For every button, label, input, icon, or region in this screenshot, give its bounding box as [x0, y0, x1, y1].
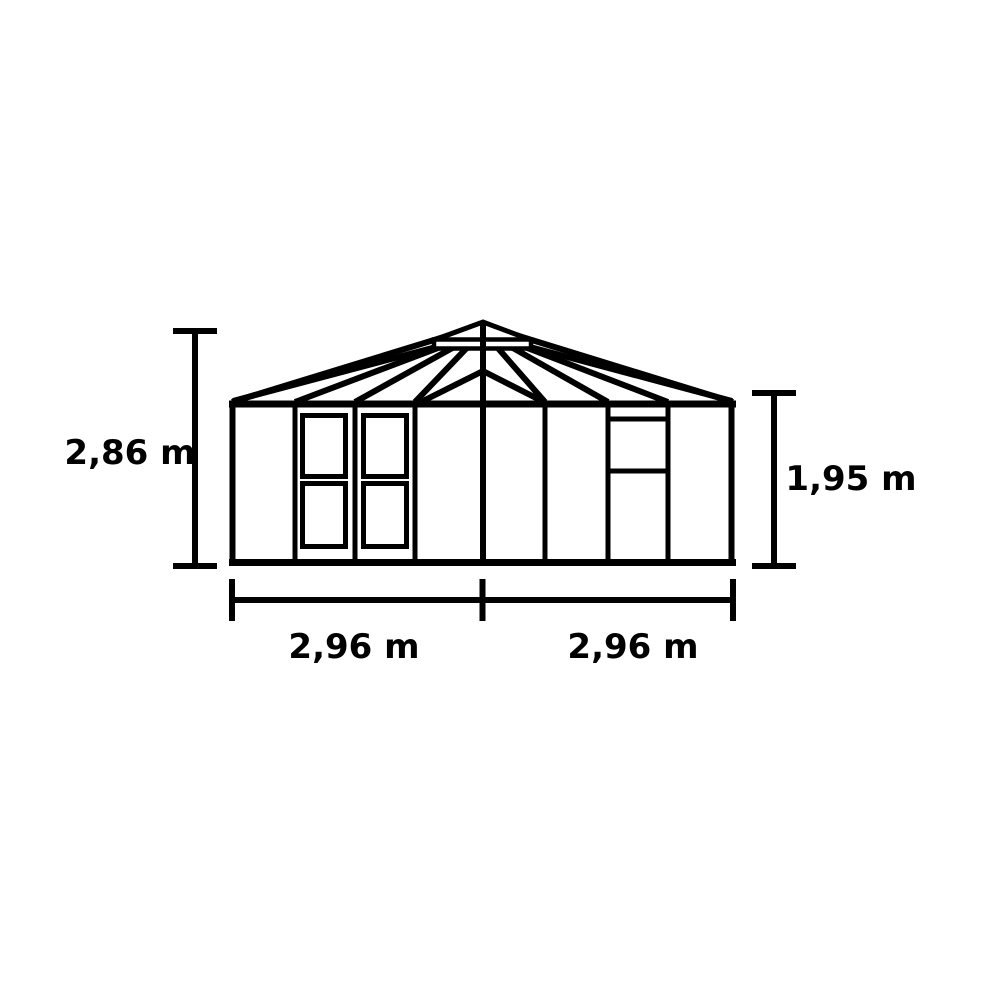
width-right-label: 2,96 m [567, 627, 698, 667]
door-window-pane [303, 484, 346, 547]
side-vent-window [608, 419, 668, 471]
door-window-pane [364, 416, 407, 477]
door-window-pane [303, 416, 346, 477]
elevation-drawing: 2,86 m 1,95 m 2,96 m 2,96 m [0, 0, 1000, 1000]
right-door [364, 416, 407, 547]
door-window-pane [364, 484, 407, 547]
left-door [303, 416, 346, 547]
roof [229, 322, 736, 560]
dimension-width [232, 579, 733, 621]
overall-height-label: 2,86 m [64, 433, 195, 473]
width-left-label: 2,96 m [288, 627, 419, 667]
greenhouse-elevation-diagram: 2,86 m 1,95 m 2,96 m 2,96 m [0, 0, 1000, 1000]
eave-height-label: 1,95 m [785, 459, 916, 499]
